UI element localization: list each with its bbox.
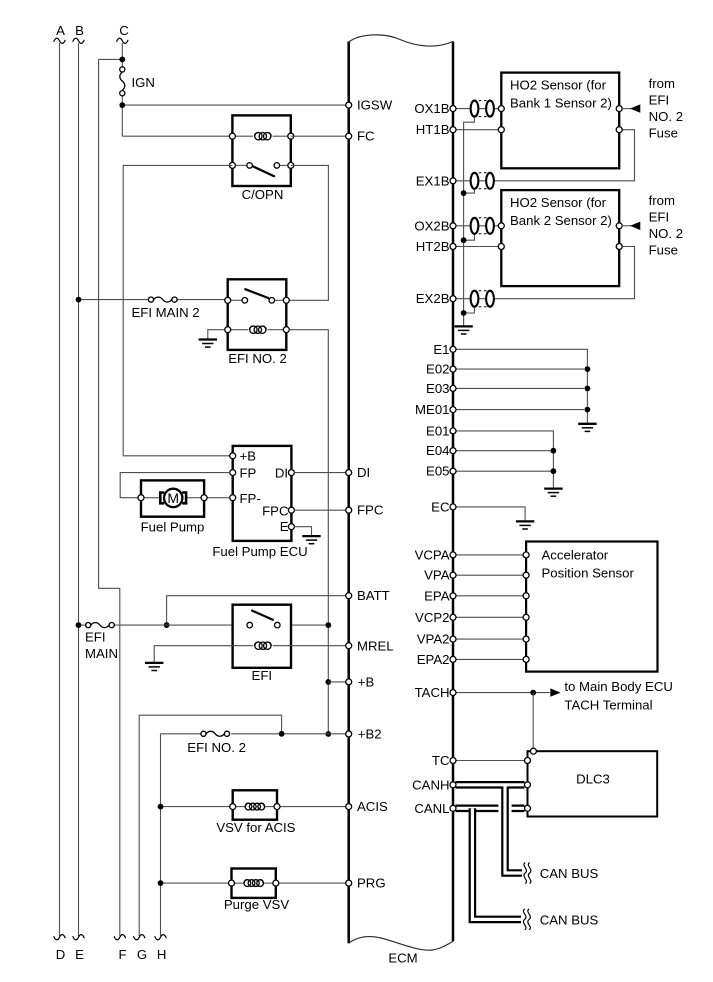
svg-text:EFI: EFI bbox=[649, 210, 670, 225]
svg-text:from: from bbox=[649, 76, 675, 91]
svg-text:VPA: VPA bbox=[424, 568, 450, 583]
svg-text:Accelerator: Accelerator bbox=[542, 548, 609, 563]
svg-text:Bank 2 Sensor 2): Bank 2 Sensor 2) bbox=[510, 213, 612, 228]
svg-text:Fuel Pump ECU: Fuel Pump ECU bbox=[212, 544, 307, 559]
svg-text:E: E bbox=[280, 519, 289, 534]
svg-text:EFI: EFI bbox=[85, 630, 106, 645]
svg-text:G: G bbox=[137, 947, 147, 962]
svg-text:ECM: ECM bbox=[388, 951, 417, 966]
svg-text:EFI: EFI bbox=[649, 93, 670, 108]
svg-text:HT1B: HT1B bbox=[416, 122, 450, 137]
svg-text:M: M bbox=[167, 490, 179, 506]
svg-text:OX2B: OX2B bbox=[414, 218, 449, 233]
svg-text:A: A bbox=[56, 23, 65, 38]
svg-text:to Main Body ECU: to Main Body ECU bbox=[564, 679, 672, 694]
svg-text:E01: E01 bbox=[426, 423, 449, 438]
svg-text:VCPA: VCPA bbox=[415, 547, 450, 562]
svg-text:EPA: EPA bbox=[424, 588, 450, 603]
svg-text:HO2 Sensor (for: HO2 Sensor (for bbox=[510, 195, 607, 210]
svg-text:VSV for ACIS: VSV for ACIS bbox=[216, 820, 295, 835]
svg-text:E1: E1 bbox=[433, 342, 449, 357]
svg-text:E05: E05 bbox=[426, 464, 449, 479]
svg-text:EPA2: EPA2 bbox=[417, 652, 450, 667]
svg-text:E03: E03 bbox=[426, 381, 449, 396]
svg-text:EFI: EFI bbox=[252, 668, 273, 683]
svg-text:Position Sensor: Position Sensor bbox=[542, 566, 635, 581]
svg-text:+B: +B bbox=[358, 674, 375, 689]
svg-text:FPC: FPC bbox=[357, 503, 384, 518]
svg-text:D: D bbox=[56, 947, 66, 962]
svg-text:VCP2: VCP2 bbox=[415, 610, 449, 625]
svg-text:+B2: +B2 bbox=[358, 727, 382, 742]
svg-text:TC: TC bbox=[432, 753, 450, 768]
svg-text:FP: FP bbox=[240, 465, 257, 480]
svg-text:Bank 1 Sensor 2): Bank 1 Sensor 2) bbox=[510, 96, 612, 111]
svg-text:CAN BUS: CAN BUS bbox=[540, 866, 599, 881]
svg-text:NO. 2: NO. 2 bbox=[649, 226, 683, 241]
svg-text:E02: E02 bbox=[426, 362, 449, 377]
svg-text:MREL: MREL bbox=[357, 639, 394, 654]
svg-text:OX1B: OX1B bbox=[414, 101, 449, 116]
svg-text:FP-: FP- bbox=[240, 491, 261, 506]
svg-text:from: from bbox=[649, 193, 675, 208]
svg-text:FPC: FPC bbox=[262, 503, 289, 518]
svg-text:CANH: CANH bbox=[412, 777, 449, 792]
svg-text:Purge VSV: Purge VSV bbox=[224, 897, 289, 912]
svg-text:C/OPN: C/OPN bbox=[242, 187, 284, 202]
svg-text:B: B bbox=[75, 23, 84, 38]
svg-text:ME01: ME01 bbox=[415, 402, 449, 417]
svg-text:IGSW: IGSW bbox=[357, 98, 393, 113]
svg-text:IGN: IGN bbox=[132, 75, 155, 90]
svg-text:EX1B: EX1B bbox=[416, 173, 450, 188]
svg-text:TACH: TACH bbox=[415, 685, 450, 700]
svg-text:EFI MAIN 2: EFI MAIN 2 bbox=[132, 305, 200, 320]
svg-text:PRG: PRG bbox=[357, 876, 386, 891]
svg-text:FC: FC bbox=[357, 129, 375, 144]
svg-text:Fuel Pump: Fuel Pump bbox=[141, 520, 205, 535]
svg-text:H: H bbox=[157, 947, 167, 962]
svg-text:NO. 2: NO. 2 bbox=[649, 109, 683, 124]
svg-text:CAN BUS: CAN BUS bbox=[540, 912, 599, 927]
svg-text:TACH Terminal: TACH Terminal bbox=[564, 698, 652, 713]
svg-text:C: C bbox=[119, 23, 129, 38]
svg-text:EFI NO. 2: EFI NO. 2 bbox=[228, 351, 287, 366]
svg-text:DI: DI bbox=[275, 465, 288, 480]
svg-text:F: F bbox=[118, 947, 126, 962]
svg-text:DLC3: DLC3 bbox=[576, 772, 610, 787]
svg-text:HO2 Sensor (for: HO2 Sensor (for bbox=[510, 78, 607, 93]
svg-text:EX2B: EX2B bbox=[416, 291, 450, 306]
svg-text:DI: DI bbox=[357, 465, 370, 480]
svg-text:EFI NO. 2: EFI NO. 2 bbox=[187, 740, 246, 755]
svg-text:EC: EC bbox=[431, 499, 450, 514]
svg-text:ACIS: ACIS bbox=[357, 799, 388, 814]
svg-text:HT2B: HT2B bbox=[416, 239, 450, 254]
svg-text:Fuse: Fuse bbox=[649, 243, 678, 258]
svg-text:E: E bbox=[75, 947, 84, 962]
svg-text:BATT: BATT bbox=[357, 588, 390, 603]
svg-text:Fuse: Fuse bbox=[649, 126, 678, 141]
svg-text:+B: +B bbox=[240, 448, 257, 463]
svg-text:VPA2: VPA2 bbox=[417, 632, 450, 647]
svg-text:CANL: CANL bbox=[414, 801, 449, 816]
svg-text:E04: E04 bbox=[426, 443, 449, 458]
svg-text:MAIN: MAIN bbox=[85, 646, 118, 661]
